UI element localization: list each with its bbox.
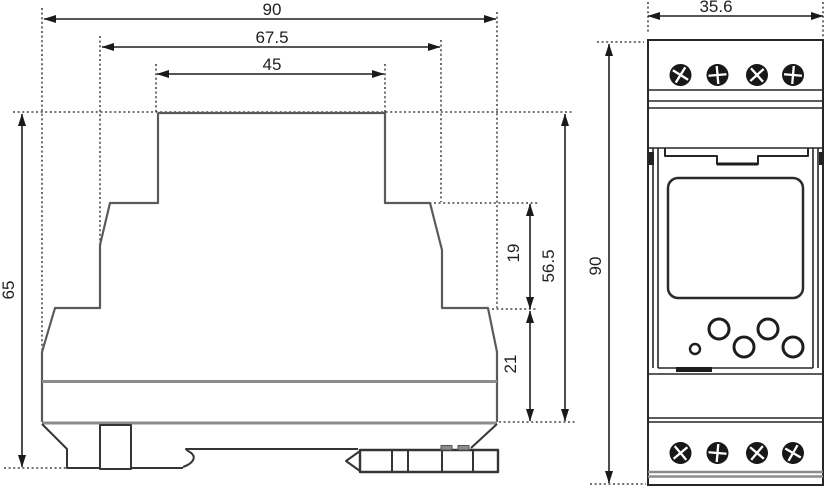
dimension-label: 90 [263, 0, 282, 19]
dimension-label: 90 [586, 257, 605, 276]
side-view: 90 67.5 45 65 19 21 56.5 [0, 0, 575, 472]
din-rail-slider [346, 446, 498, 473]
dimension-label: 45 [263, 55, 282, 74]
dimension-label: 35.6 [699, 0, 732, 16]
slider-bump [441, 446, 452, 451]
round-button [758, 319, 778, 339]
panel-latch [676, 367, 712, 372]
dim-front-height: 90 [586, 44, 609, 483]
slider-bump [458, 446, 469, 451]
dim-overall-width: 90 [44, 0, 496, 19]
din-rail-foot [42, 424, 498, 472]
dimension-label: 65 [0, 281, 18, 300]
round-button [709, 319, 729, 339]
side-body [42, 113, 497, 423]
hinge-pin [649, 152, 654, 165]
side-body-outline-left [42, 113, 158, 422]
slider-point [346, 451, 360, 471]
dim-height: 65 [0, 114, 22, 467]
display-window [668, 178, 803, 298]
dim-right-height: 56.5 [539, 114, 565, 421]
side-body-outline-right [158, 113, 497, 422]
round-button [783, 337, 803, 357]
slider-body [360, 450, 498, 472]
fixed-clip [100, 425, 131, 469]
dim-step-upper: 19 [504, 204, 530, 309]
hinge-pin [819, 152, 824, 165]
dim-mid-width: 67.5 [102, 28, 440, 47]
dimension-label: 19 [504, 244, 523, 263]
dimension-label: 67.5 [255, 28, 288, 47]
led-indicator [690, 344, 700, 354]
dim-step-lower: 21 [501, 311, 530, 421]
dim-top-width: 45 [157, 55, 384, 74]
foot-right-chamfer [471, 424, 497, 448]
dimension-label: 56.5 [539, 249, 558, 282]
technical-drawing-page: 90 67.5 45 65 19 21 56.5 [0, 0, 833, 492]
front-view: 35.6 90 [586, 0, 824, 485]
round-button [734, 337, 754, 357]
dim-front-width: 35.6 [648, 0, 823, 16]
extension-lines [4, 8, 575, 468]
dimension-drawing: 90 67.5 45 65 19 21 56.5 [0, 0, 833, 492]
rail-channel-hook [183, 449, 358, 467]
dimension-label: 21 [501, 355, 520, 374]
